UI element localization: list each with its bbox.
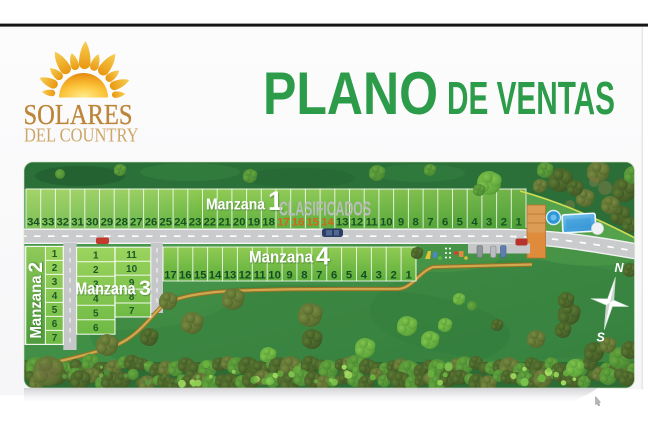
svg-text:22: 22 — [204, 217, 217, 229]
svg-text:9: 9 — [286, 269, 292, 281]
svg-text:17: 17 — [164, 269, 177, 281]
svg-text:10: 10 — [126, 264, 138, 275]
svg-text:5: 5 — [346, 269, 352, 281]
svg-text:4: 4 — [361, 269, 368, 281]
svg-text:8: 8 — [413, 217, 419, 229]
svg-text:Manzana: Manzana — [76, 279, 136, 299]
svg-text:31: 31 — [71, 217, 84, 229]
svg-text:7: 7 — [129, 306, 135, 317]
svg-text:34: 34 — [27, 217, 40, 229]
svg-text:25: 25 — [159, 217, 172, 229]
svg-text:1: 1 — [93, 250, 99, 261]
svg-text:10: 10 — [380, 217, 393, 229]
svg-text:26: 26 — [145, 217, 158, 229]
svg-text:1: 1 — [405, 269, 411, 281]
svg-text:6: 6 — [93, 323, 99, 334]
svg-text:3: 3 — [486, 217, 492, 229]
svg-text:Manzana: Manzana — [206, 197, 265, 214]
svg-text:DEL COUNTRY: DEL COUNTRY — [24, 125, 139, 147]
svg-text:2: 2 — [26, 262, 47, 273]
svg-text:6: 6 — [442, 217, 448, 229]
svg-text:CLASIFICADOS: CLASIFICADOS — [279, 198, 371, 221]
svg-text:7: 7 — [52, 333, 58, 344]
svg-text:30: 30 — [86, 217, 99, 229]
svg-text:11: 11 — [254, 269, 266, 281]
svg-text:11: 11 — [126, 250, 137, 261]
svg-text:23: 23 — [189, 217, 202, 229]
svg-text:27: 27 — [130, 217, 143, 229]
svg-text:9: 9 — [398, 217, 404, 229]
svg-text:12: 12 — [239, 269, 252, 281]
svg-text:18: 18 — [262, 217, 275, 229]
svg-text:N: N — [615, 261, 625, 275]
svg-text:21: 21 — [218, 217, 231, 229]
svg-text:13: 13 — [224, 269, 237, 281]
svg-text:20: 20 — [233, 217, 246, 229]
svg-text:6: 6 — [52, 319, 58, 330]
svg-text:28: 28 — [115, 217, 128, 229]
svg-text:32: 32 — [57, 217, 70, 229]
svg-text:4: 4 — [316, 243, 330, 271]
svg-text:3: 3 — [376, 269, 382, 281]
svg-text:24: 24 — [174, 217, 187, 229]
svg-text:Manzana: Manzana — [28, 275, 45, 338]
svg-text:5: 5 — [93, 308, 99, 319]
svg-text:33: 33 — [42, 217, 55, 229]
svg-text:4: 4 — [471, 217, 478, 229]
svg-text:3: 3 — [139, 276, 151, 300]
svg-text:2: 2 — [501, 217, 507, 229]
svg-text:6: 6 — [331, 269, 337, 281]
svg-text:7: 7 — [316, 269, 322, 281]
svg-text:16: 16 — [179, 269, 192, 281]
svg-text:5: 5 — [457, 217, 463, 229]
svg-text:PLANO: PLANO — [263, 59, 438, 127]
svg-text:2: 2 — [391, 269, 397, 281]
svg-text:2: 2 — [93, 265, 99, 276]
svg-text:4: 4 — [52, 291, 58, 302]
svg-text:29: 29 — [101, 217, 114, 229]
svg-text:14: 14 — [209, 269, 222, 281]
svg-text:1: 1 — [515, 217, 521, 229]
svg-text:8: 8 — [301, 269, 307, 281]
svg-text:5: 5 — [52, 305, 58, 316]
svg-text:19: 19 — [248, 217, 261, 229]
svg-text:2: 2 — [52, 263, 58, 274]
svg-text:15: 15 — [194, 269, 207, 281]
svg-text:S: S — [597, 331, 606, 345]
svg-text:Manzana: Manzana — [249, 249, 314, 267]
svg-text:3: 3 — [52, 277, 58, 288]
svg-text:DE VENTAS: DE VENTAS — [447, 72, 615, 124]
svg-text:7: 7 — [427, 217, 433, 229]
svg-text:10: 10 — [268, 269, 281, 281]
svg-text:1: 1 — [52, 249, 58, 260]
